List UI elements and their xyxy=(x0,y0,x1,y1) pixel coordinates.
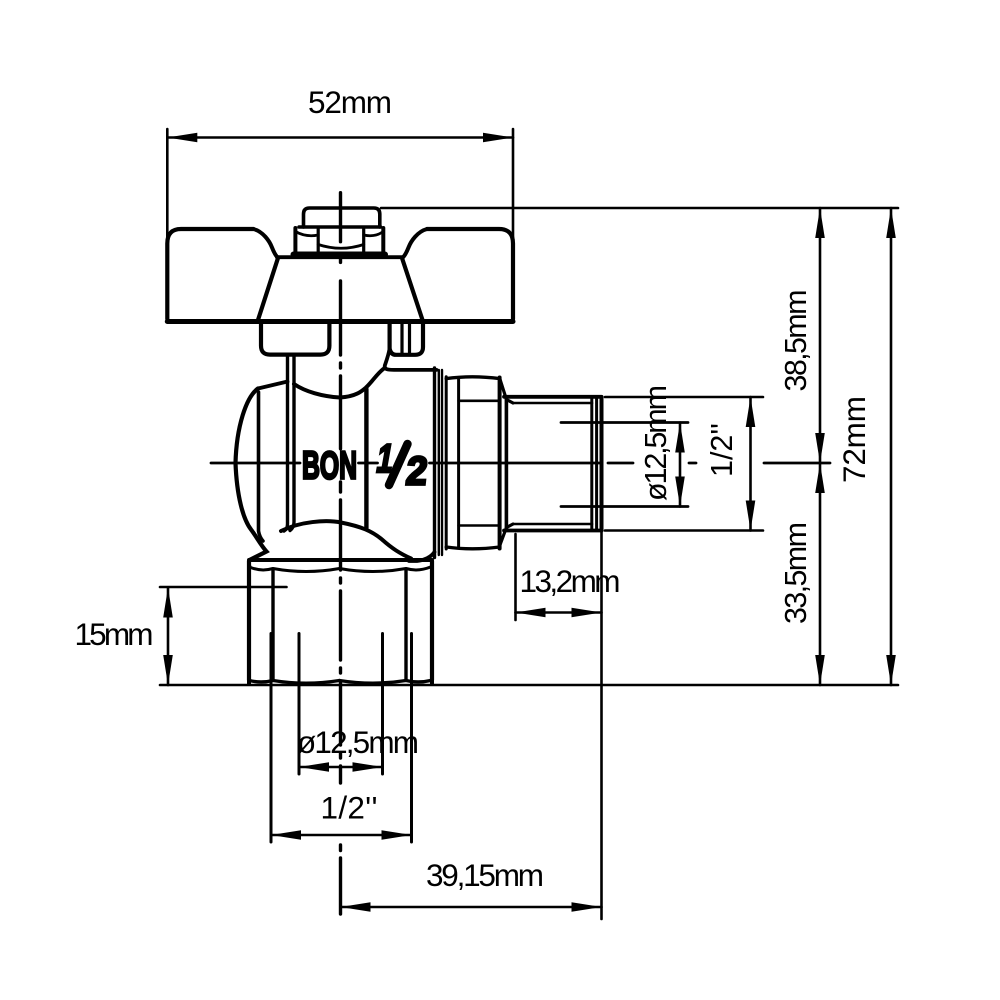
svg-text:15mm: 15mm xyxy=(75,616,154,652)
svg-text:13,2mm: 13,2mm xyxy=(520,563,621,599)
svg-text:1/2'': 1/2'' xyxy=(321,790,378,826)
svg-text:39,15mm: 39,15mm xyxy=(426,857,544,893)
svg-text:52mm: 52mm xyxy=(308,84,392,120)
svg-text:72mm: 72mm xyxy=(836,396,872,483)
svg-text:ø12,5mm: ø12,5mm xyxy=(297,724,419,760)
svg-text:38,5mm: 38,5mm xyxy=(779,290,813,392)
svg-text:33,5mm: 33,5mm xyxy=(779,522,813,624)
svg-text:1/2'': 1/2'' xyxy=(705,423,739,477)
svg-text:BON: BON xyxy=(302,445,357,488)
svg-text:ø12,5mm: ø12,5mm xyxy=(639,385,673,501)
